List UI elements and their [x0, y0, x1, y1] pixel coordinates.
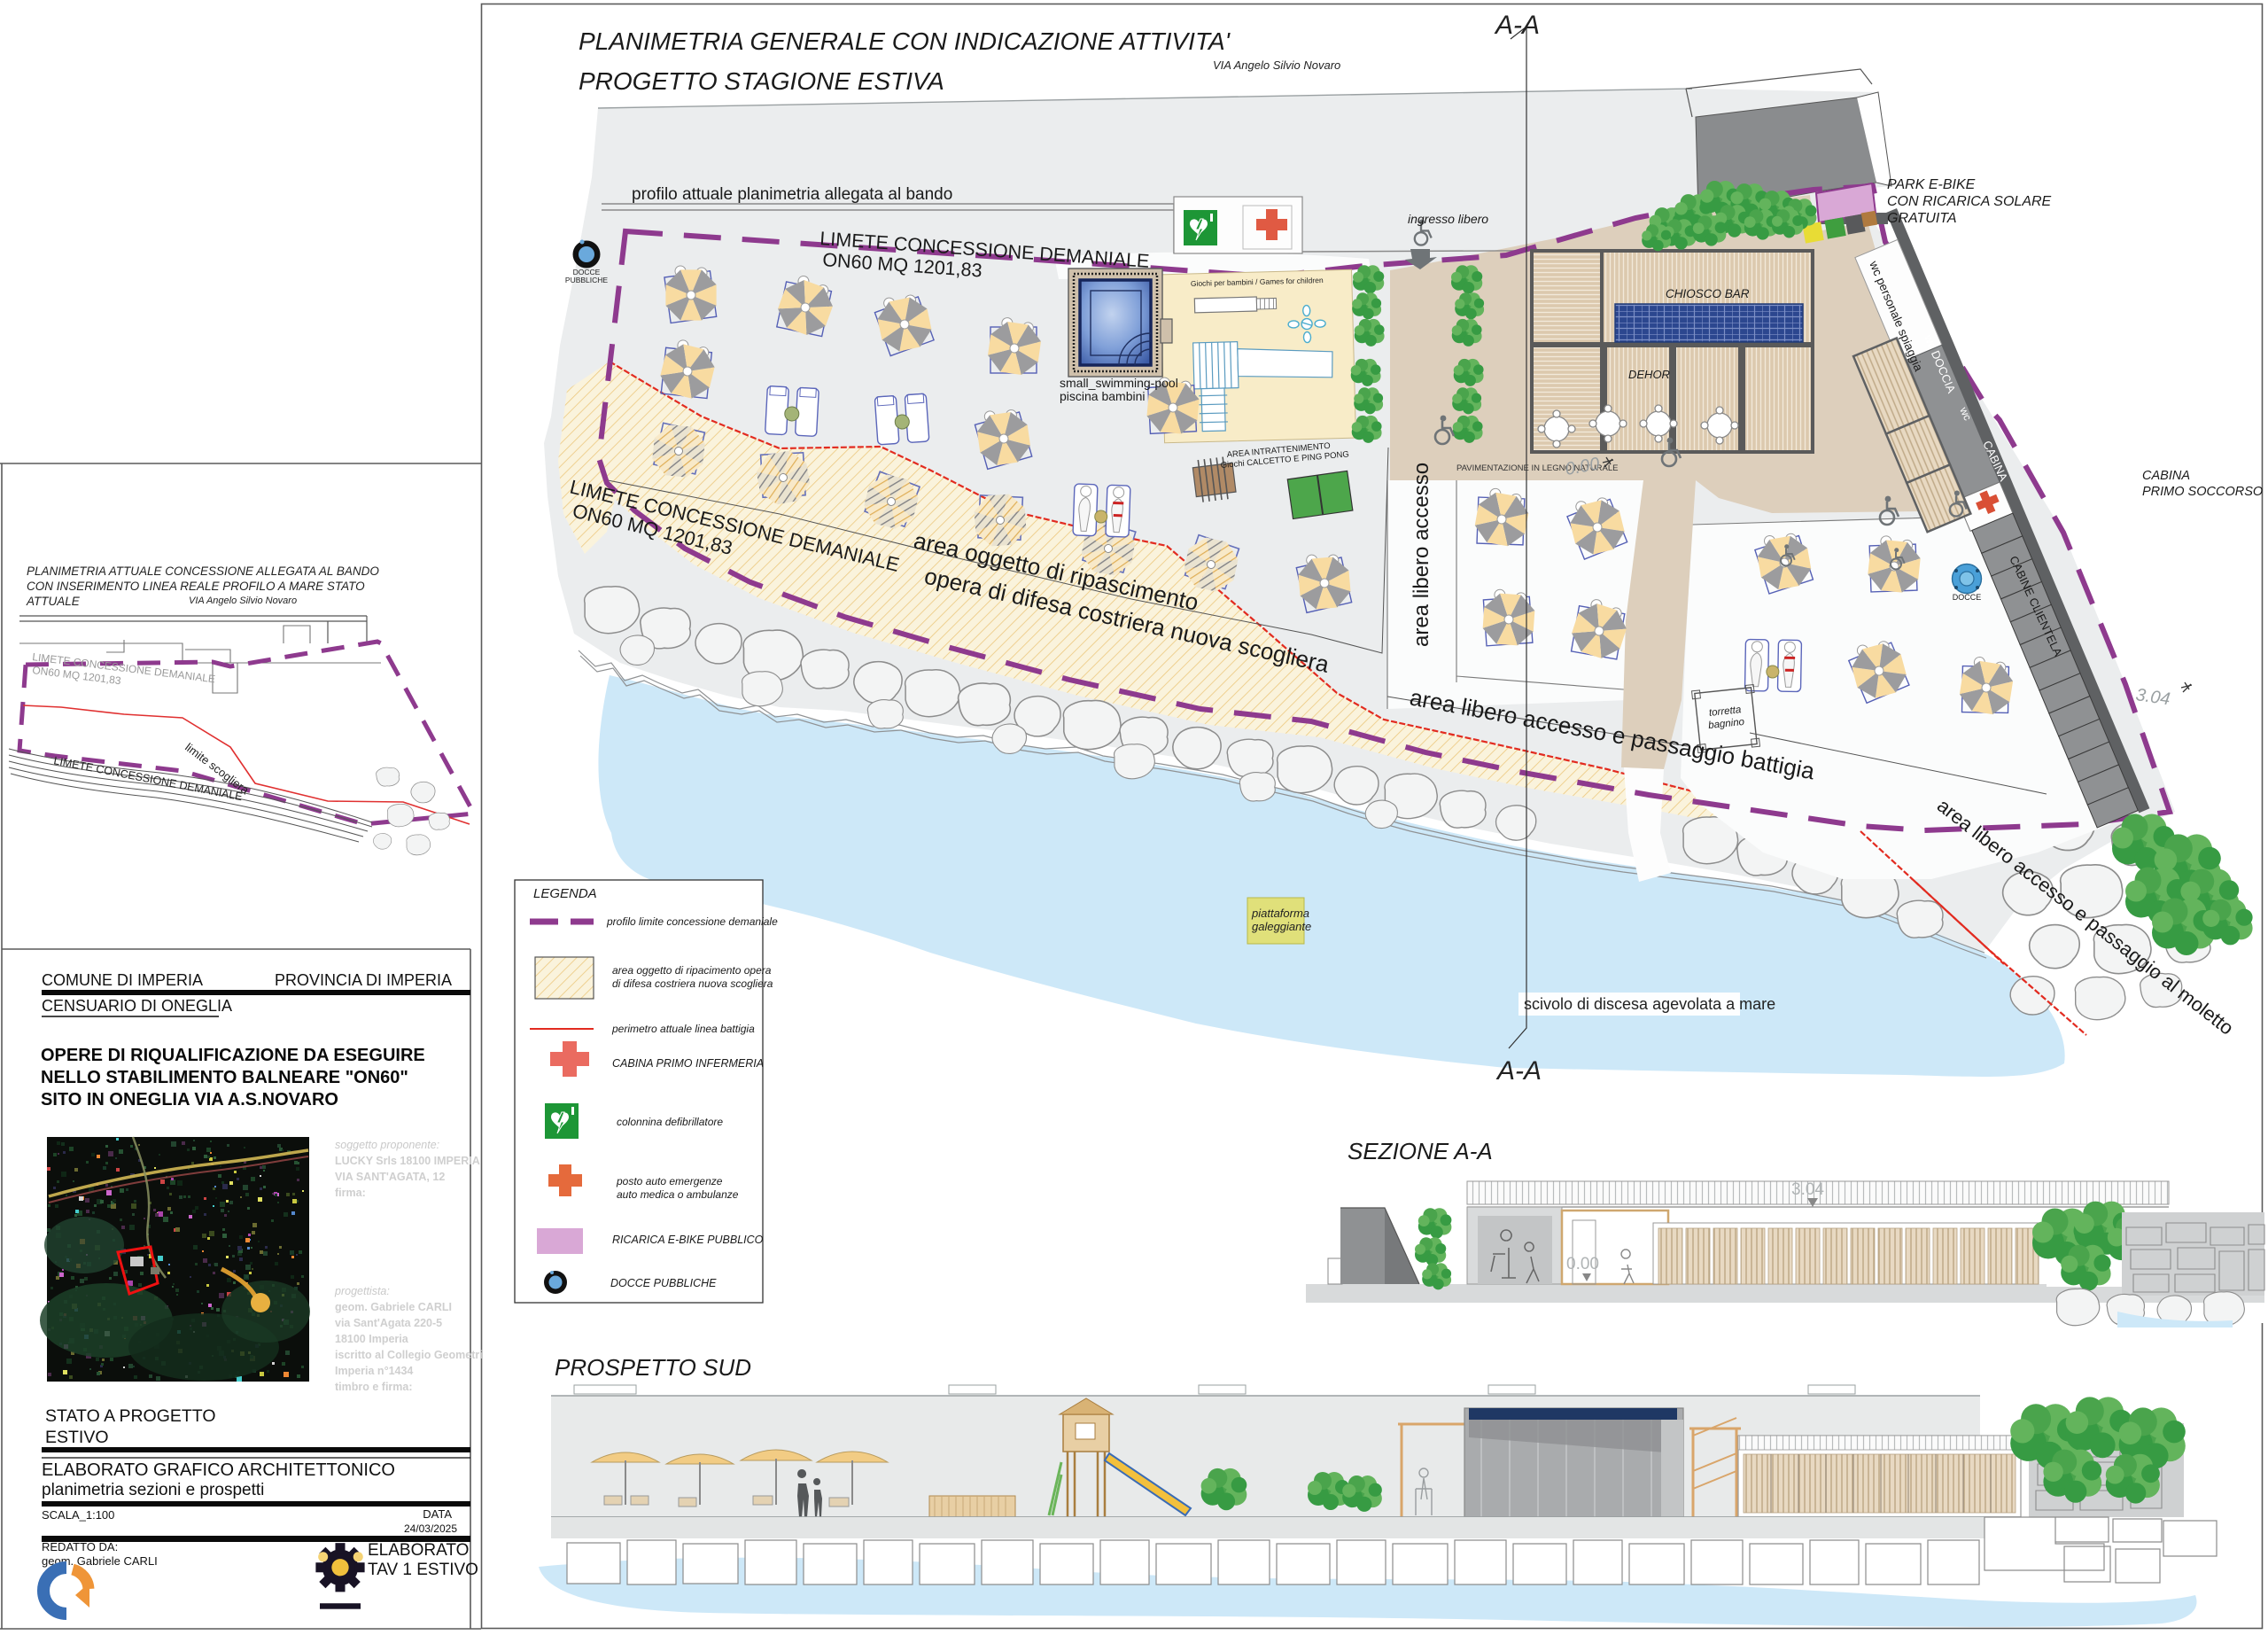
- svg-text:24/03/2025: 24/03/2025: [404, 1522, 457, 1535]
- svg-text:area libero accesso: area libero accesso: [1410, 463, 1433, 647]
- svg-text:LEGENDA: LEGENDA: [533, 886, 597, 901]
- svg-text:PROVINCIA DI IMPERIA: PROVINCIA DI IMPERIA: [275, 971, 452, 989]
- svg-text:posto auto emergenze: posto auto emergenze: [616, 1175, 723, 1187]
- svg-text:PLANIMETRIA ATTUALE CONCESSION: PLANIMETRIA ATTUALE CONCESSIONE ALLEGATA…: [27, 564, 379, 578]
- svg-text:ingresso libero: ingresso libero: [1408, 212, 1488, 226]
- svg-text:REDATTO DA:: REDATTO DA:: [42, 1540, 118, 1553]
- svg-text:iscritto al Collegio Geometri: iscritto al Collegio Geometri: [335, 1349, 483, 1361]
- svg-text:18100 Imperia: 18100 Imperia: [335, 1333, 409, 1345]
- svg-text:galeggiante: galeggiante: [1252, 920, 1311, 933]
- svg-text:VIA Angelo Silvio Novaro: VIA Angelo Silvio Novaro: [1213, 58, 1340, 72]
- svg-text:piscina bambini: piscina bambini: [1060, 389, 1146, 403]
- svg-text:PUBBLICHE: PUBBLICHE: [565, 276, 609, 284]
- svg-text:DATA: DATA: [423, 1507, 452, 1521]
- svg-text:geom. Gabriele CARLI: geom. Gabriele CARLI: [335, 1301, 452, 1313]
- svg-text:CON RICARICA SOLARE: CON RICARICA SOLARE: [1887, 194, 2052, 209]
- svg-text:PROGETTO STAGIONE ESTIVA: PROGETTO STAGIONE ESTIVA: [579, 67, 944, 95]
- svg-text:ATTUALE: ATTUALE: [26, 595, 81, 608]
- svg-text:STATO A PROGETTO: STATO A PROGETTO: [45, 1406, 216, 1426]
- svg-text:SITO IN ONEGLIA VIA A.S.NOVARO: SITO IN ONEGLIA VIA A.S.NOVARO: [41, 1090, 338, 1109]
- svg-text:perimetro attuale linea battig: perimetro attuale linea battigia: [611, 1023, 755, 1035]
- svg-text:piattaforma: piattaforma: [1251, 907, 1309, 920]
- svg-text:scivolo di discesa agevolata a: scivolo di discesa agevolata a mare: [1524, 995, 1775, 1013]
- svg-text:OPERE DI RIQUALIFICAZIONE DA E: OPERE DI RIQUALIFICAZIONE DA ESEGUIRE: [41, 1046, 425, 1065]
- svg-text:small_swimming-pool: small_swimming-pool: [1060, 376, 1178, 390]
- svg-text:DEHOR: DEHOR: [1628, 368, 1670, 381]
- svg-text:VIA Angelo Silvio Novaro: VIA Angelo Silvio Novaro: [189, 596, 297, 606]
- svg-text:Imperia n°1434: Imperia n°1434: [335, 1365, 413, 1377]
- svg-text:3.04: 3.04: [1791, 1180, 1824, 1199]
- svg-text:firma:: firma:: [335, 1187, 366, 1199]
- svg-text:GRATUITA: GRATUITA: [1887, 211, 1957, 226]
- svg-text:PLANIMETRIA GENERALE CON INDIC: PLANIMETRIA GENERALE CON INDICAZIONE ATT…: [579, 27, 1231, 55]
- svg-text:via Sant'Agata 220-5: via Sant'Agata 220-5: [335, 1317, 442, 1329]
- svg-text:ESTIVO: ESTIVO: [45, 1428, 109, 1447]
- svg-text:ELABORATO GRAFICO ARCHITETTONI: ELABORATO GRAFICO ARCHITETTONICO: [42, 1460, 395, 1480]
- svg-text:TAV 1 ESTIVO: TAV 1 ESTIVO: [368, 1561, 478, 1579]
- svg-text:di difesa costriera nuova scog: di difesa costriera nuova scogliera: [612, 977, 773, 990]
- svg-text:area oggetto di ripacimento op: area oggetto di ripacimento opera: [612, 964, 772, 977]
- svg-text:ELABORATO: ELABORATO: [368, 1541, 469, 1560]
- svg-text:NELLO STABILIMENTO BALNEARE "O: NELLO STABILIMENTO BALNEARE "ON60": [41, 1068, 408, 1087]
- svg-text:DOCCE PUBBLICHE: DOCCE PUBBLICHE: [610, 1277, 717, 1289]
- svg-text:SEZIONE A-A: SEZIONE A-A: [1348, 1138, 1493, 1164]
- svg-text:auto medica o ambulanze: auto medica o ambulanze: [617, 1188, 739, 1201]
- svg-text:PARK E-BIKE: PARK E-BIKE: [1887, 177, 1976, 192]
- svg-text:RICARICA E-BIKE PUBBLICO: RICARICA E-BIKE PUBBLICO: [612, 1234, 764, 1246]
- svg-text:A-A: A-A: [1494, 11, 1540, 40]
- svg-text:CABINA: CABINA: [2142, 469, 2190, 483]
- svg-text:CON INSERIMENTO LINEA REALE PR: CON INSERIMENTO LINEA REALE PROFILO A MA…: [27, 580, 365, 593]
- svg-text:timbro e firma:: timbro e firma:: [335, 1381, 413, 1393]
- svg-text:DOCCE: DOCCE: [1953, 593, 1982, 602]
- svg-text:soggetto proponente:: soggetto proponente:: [335, 1139, 439, 1151]
- svg-text:progettista:: progettista:: [334, 1285, 390, 1297]
- svg-text:PRIMO SOCCORSO: PRIMO SOCCORSO: [2142, 485, 2263, 499]
- svg-text:CENSUARIO DI ONEGLIA: CENSUARIO DI ONEGLIA: [42, 997, 232, 1015]
- svg-text:CHIOSCO BAR: CHIOSCO BAR: [1666, 287, 1750, 300]
- svg-text:LUCKY Srls 18100 IMPERIA: LUCKY Srls 18100 IMPERIA: [335, 1155, 480, 1167]
- svg-text:profilo attuale planimetria al: profilo attuale planimetria allegata al …: [632, 185, 952, 204]
- svg-text:planimetria sezioni e prospett: planimetria sezioni e prospetti: [42, 1481, 264, 1499]
- svg-text:CABINA PRIMO INFERMERIA: CABINA PRIMO INFERMERIA: [612, 1057, 764, 1070]
- svg-text:A-A: A-A: [1495, 1056, 1542, 1086]
- svg-text:colonnina defibrillatore: colonnina defibrillatore: [617, 1116, 723, 1128]
- svg-text:VIA SANT'AGATA, 12: VIA SANT'AGATA, 12: [335, 1171, 445, 1183]
- svg-text:COMUNE DI IMPERIA: COMUNE DI IMPERIA: [42, 971, 203, 989]
- svg-text:0.00: 0.00: [1566, 1255, 1599, 1273]
- svg-text:profilo limite concessione dem: profilo limite concessione demaniale: [606, 915, 778, 928]
- svg-text:SCALA_1:100: SCALA_1:100: [42, 1508, 114, 1522]
- svg-text:PROSPETTO SUD: PROSPETTO SUD: [555, 1354, 751, 1381]
